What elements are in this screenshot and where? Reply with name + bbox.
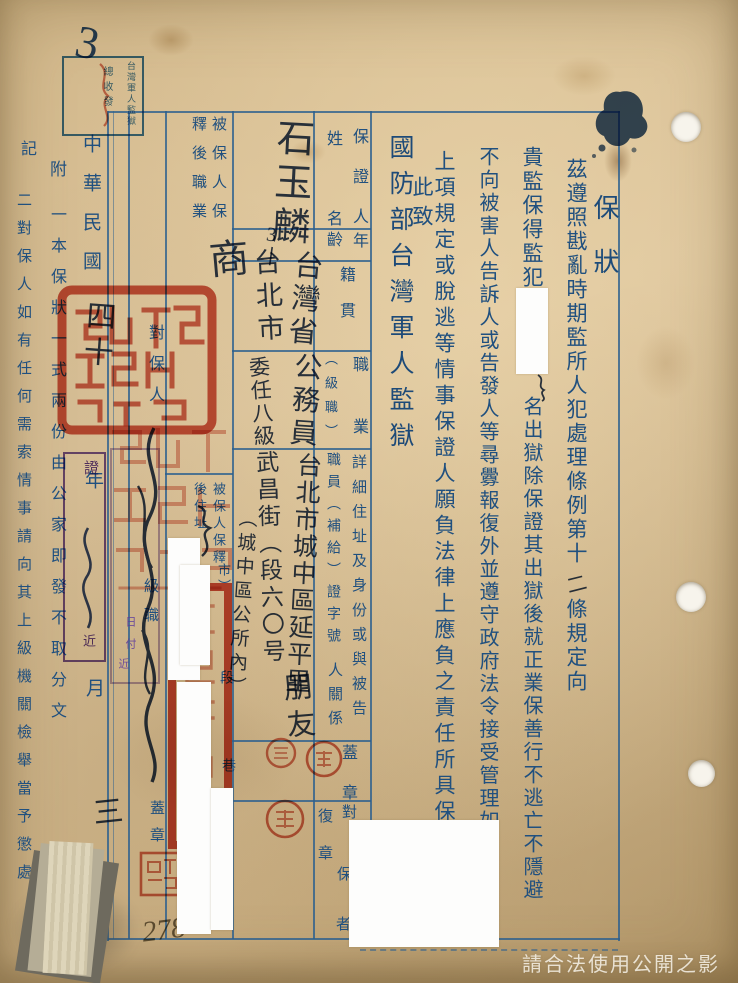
- purple-stamp-b-char2: 付: [122, 638, 138, 649]
- note-fu-header: 附: [44, 160, 69, 177]
- official-red-seal: [56, 284, 218, 436]
- red-circle-seal: [264, 736, 298, 770]
- purple-stamp-b-char1: 日: [122, 616, 138, 627]
- red-circle-seal: [304, 739, 344, 779]
- note-2-text: 二對保人如有任何需索情事請向其上級機關檢舉當予懲處: [13, 192, 34, 892]
- label-released-occupation-2: 釋後職業: [188, 116, 209, 232]
- body-column-4: 上項規定或脫逃等情事保證人願負法律上應負之責任所具保狀是實: [429, 150, 459, 904]
- body-column-3: 不向被害人告訴人或告發人等尋釁報復外並遵守政府法令接受管理如有違背: [473, 146, 502, 902]
- body-column-2b: 名出獄除保證其出獄後就正業保善行不逃亡不隱避: [517, 396, 546, 902]
- paper-stain: [636, 326, 696, 400]
- body-column-1: 茲遵照戡亂時期監所人犯處理條例第十: [561, 158, 591, 566]
- label-age-top: 年: [346, 232, 370, 248]
- redaction-box: [177, 682, 211, 934]
- label-guarantor: 保證人: [346, 128, 370, 248]
- date-month-label: 月: [80, 678, 107, 697]
- purple-stamp-a-char: 證: [80, 460, 101, 475]
- label-verify-1: 對: [338, 804, 359, 819]
- note-ji-header: 記: [14, 140, 38, 156]
- document-title: 保狀: [586, 194, 623, 302]
- purple-stamp-b-char3: 近: [115, 658, 131, 669]
- date-era: 中華民國: [77, 134, 104, 290]
- redaction-box: [516, 288, 548, 374]
- label-origin: 籍貫: [333, 266, 357, 338]
- registry-stamp-line1: 台灣軍人監獄: [125, 61, 138, 127]
- redaction-box: [349, 820, 499, 947]
- purple-stamp-a: [63, 452, 106, 662]
- label-reseal: 復章: [314, 808, 335, 882]
- scanned-bail-bond-document: 保狀 茲遵照戡亂時期監所人犯處理條例第十 二 條規定向 貴監保得監犯 名出獄除保…: [0, 0, 738, 983]
- watermark-text: 請合法使用公開之影像: [522, 948, 738, 983]
- grid-vline: [370, 111, 372, 939]
- scan-object-pages: [43, 841, 94, 975]
- label-verifier-seal: 蓋章: [146, 800, 167, 854]
- ink-blob: [588, 86, 654, 158]
- label-cert-number: 職員（補給）證字號: [322, 452, 342, 650]
- redaction-box: [180, 565, 210, 665]
- red-circle-seal: [264, 798, 306, 840]
- purple-stamp-a-char2: 近: [79, 634, 98, 647]
- body-column-1b: 條規定向: [561, 598, 591, 694]
- paper-stain: [148, 24, 194, 56]
- punch-hole: [676, 582, 706, 612]
- guarantor-occupation-value: 公務員: [280, 351, 327, 453]
- released-occupation-value: 商: [194, 236, 255, 281]
- body-column-2a: 貴監保得監犯: [517, 146, 547, 290]
- punch-hole: [688, 760, 715, 787]
- recipient-name: 國防部台灣軍人監獄: [381, 134, 417, 458]
- guarantor-rank-value: 委任八級: [243, 355, 279, 449]
- label-address-relation: 人關係: [324, 662, 345, 734]
- registry-red-marks: [92, 58, 122, 130]
- punch-hole: [671, 112, 701, 142]
- redaction-box: [211, 788, 233, 930]
- body-column-1-handwritten-correction: 二: [558, 571, 591, 597]
- label-address: 詳細住址及身份或與被告: [348, 454, 369, 725]
- label-released-occupation-1: 被保人保: [208, 116, 229, 232]
- frame-top: [108, 111, 620, 113]
- date-day-handwritten: 三: [81, 794, 128, 828]
- handwritten-scribble: [534, 372, 552, 402]
- label-age-bottom: 齡: [320, 231, 344, 247]
